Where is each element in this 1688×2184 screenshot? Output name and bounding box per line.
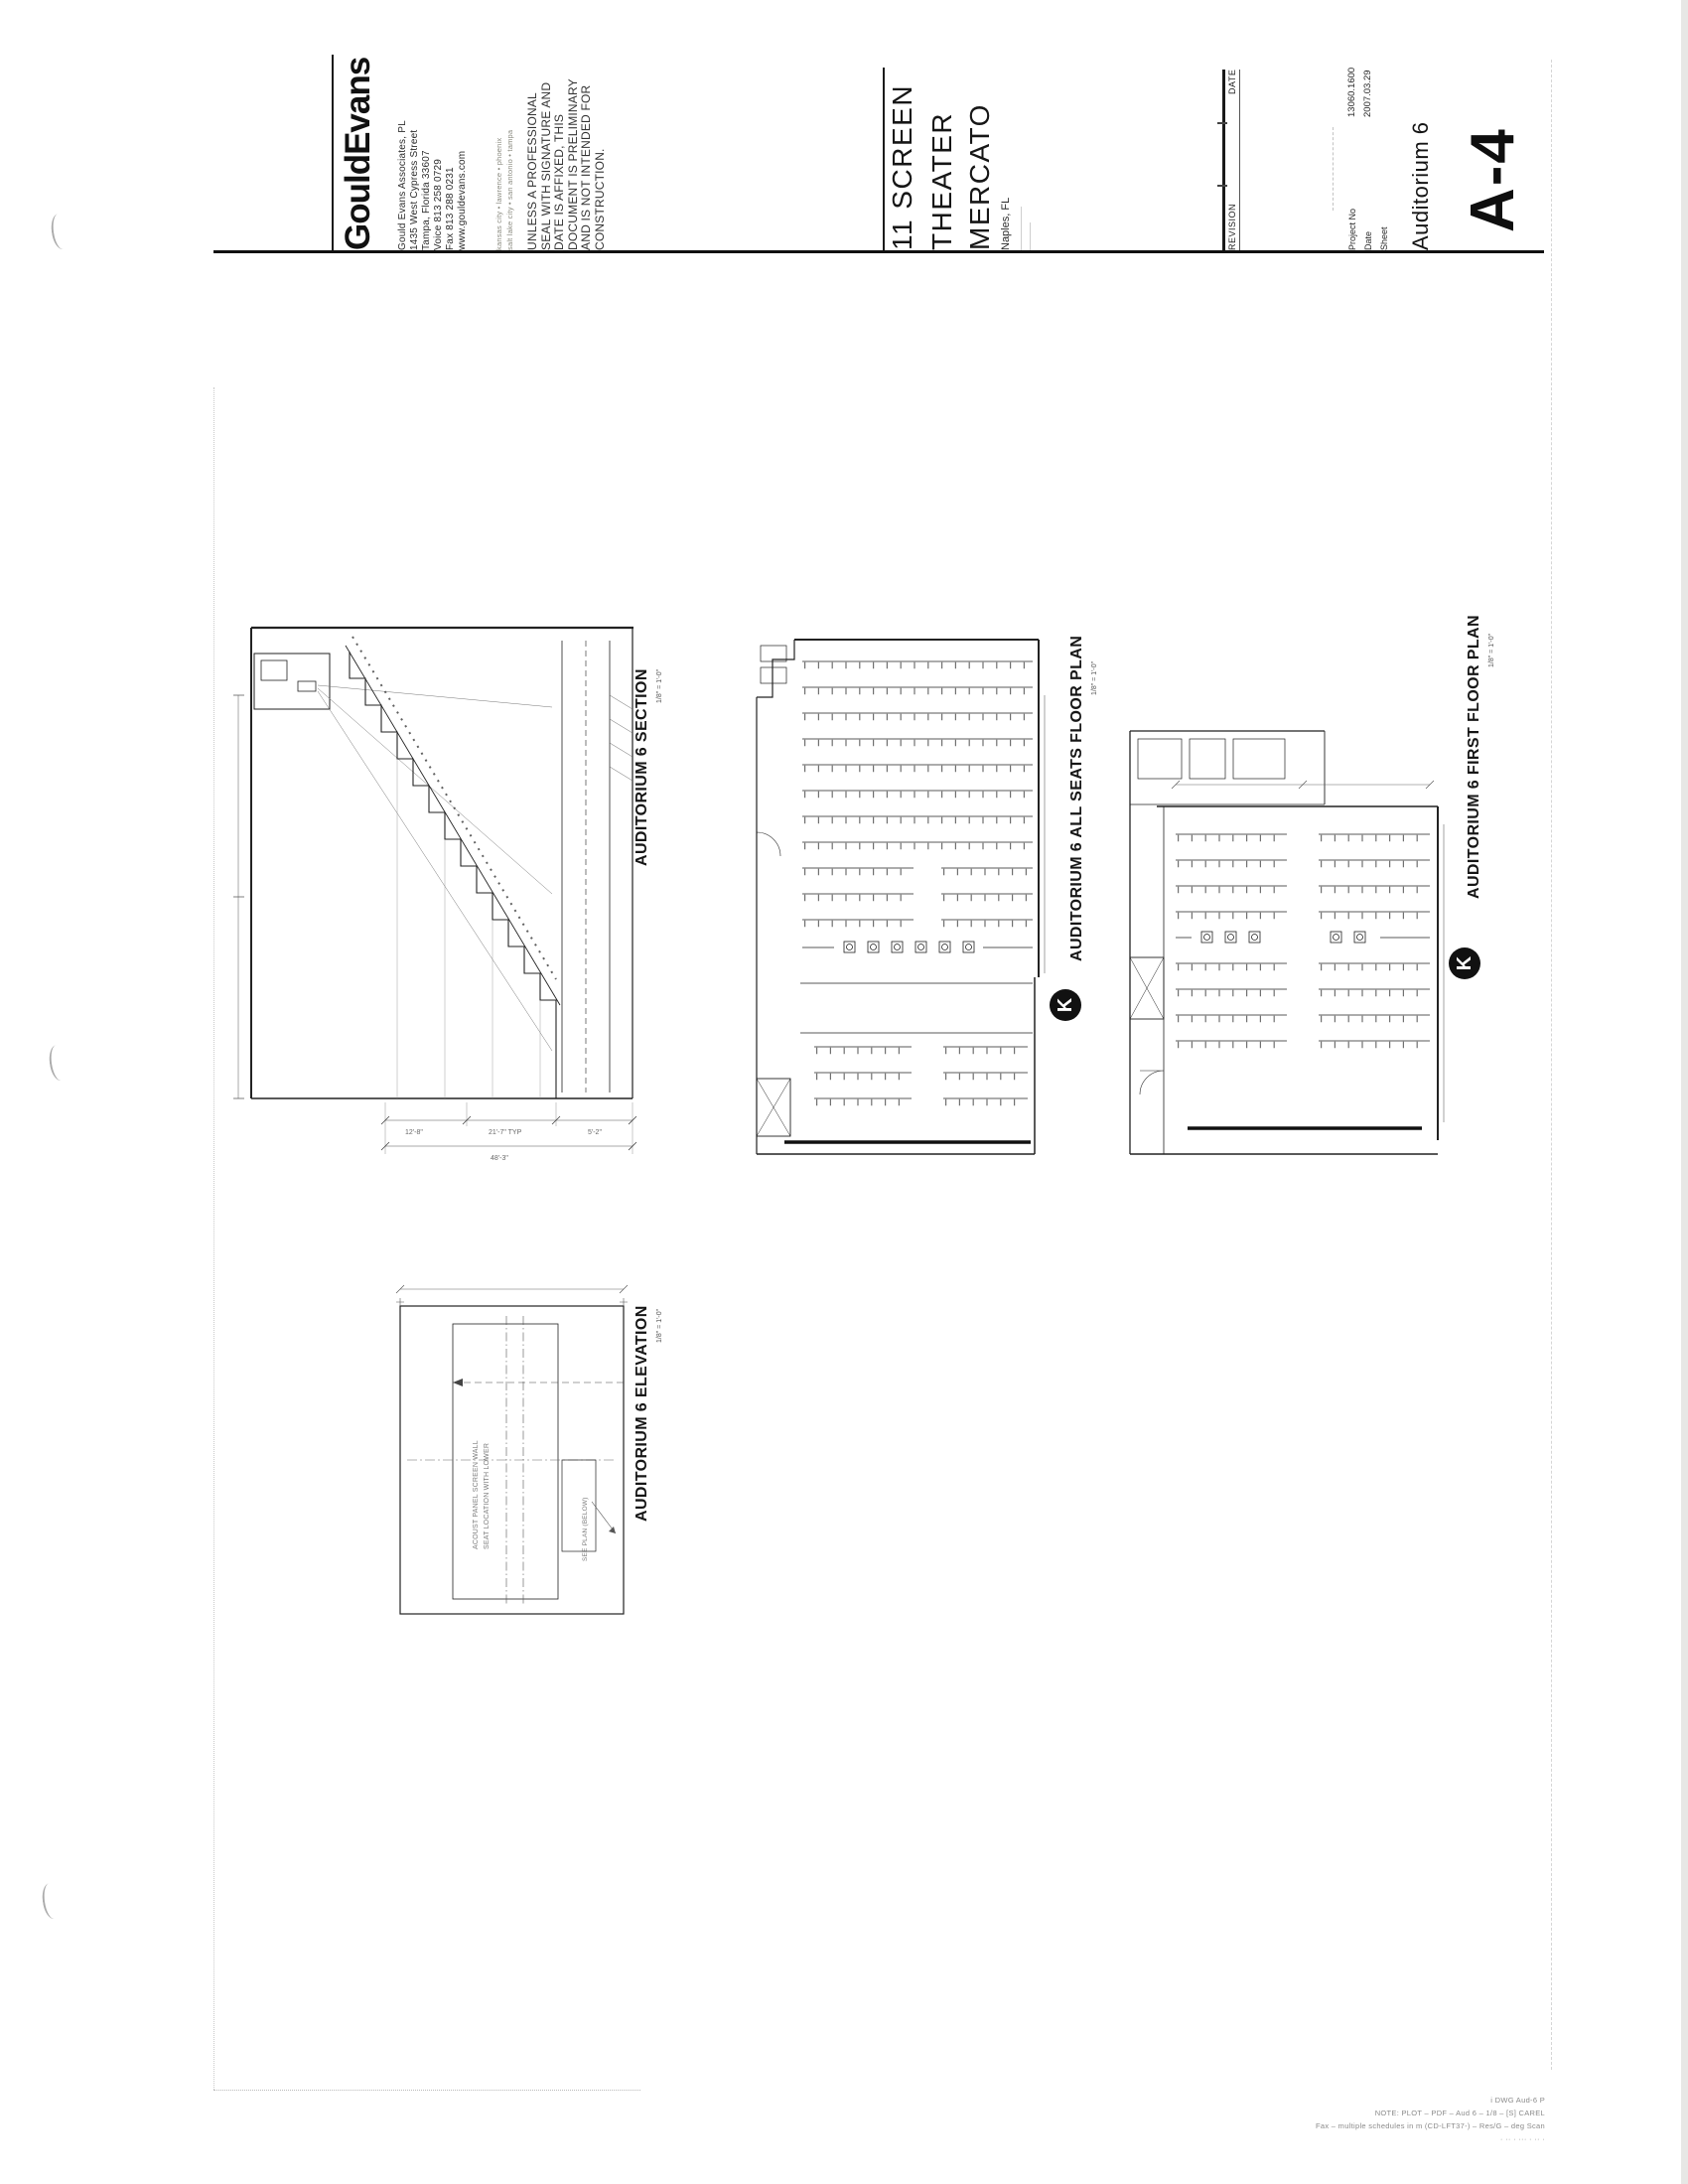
section-dim: 5'-2" (588, 1129, 602, 1136)
scanned-sheet: GouldEvans Gould Evans Associates, PL 14… (0, 0, 1688, 2184)
scan-footer-line: · ·· · ··· · ·· · (1142, 2132, 1545, 2145)
k-logo-letter: K (1454, 955, 1476, 970)
section-dim-total: 48'-3" (491, 1155, 508, 1162)
scan-footer-text: i DWG Aud-6 P NOTE: PLOT – PDF – Aud 6 –… (1142, 2094, 1545, 2145)
section-dim: 21'-7" TYP (489, 1129, 522, 1136)
scan-footer-line: Fax – multiple schedules in m (CD-LFT37-… (1142, 2119, 1545, 2132)
drawing-linework: 12'-8" 21'-7" TYP 5'-2" 48'-3" K K (0, 0, 1688, 2184)
theater-logo-mark: K K (1050, 947, 1480, 1021)
k-logo-letter: K (1055, 997, 1076, 1012)
scan-footer-line: NOTE: PLOT – PDF – Aud 6 – 1/8 – [S] CAR… (1142, 2107, 1545, 2119)
section-dim: 12'-8" (405, 1129, 423, 1136)
scan-footer-line: i DWG Aud-6 P (1142, 2094, 1545, 2107)
